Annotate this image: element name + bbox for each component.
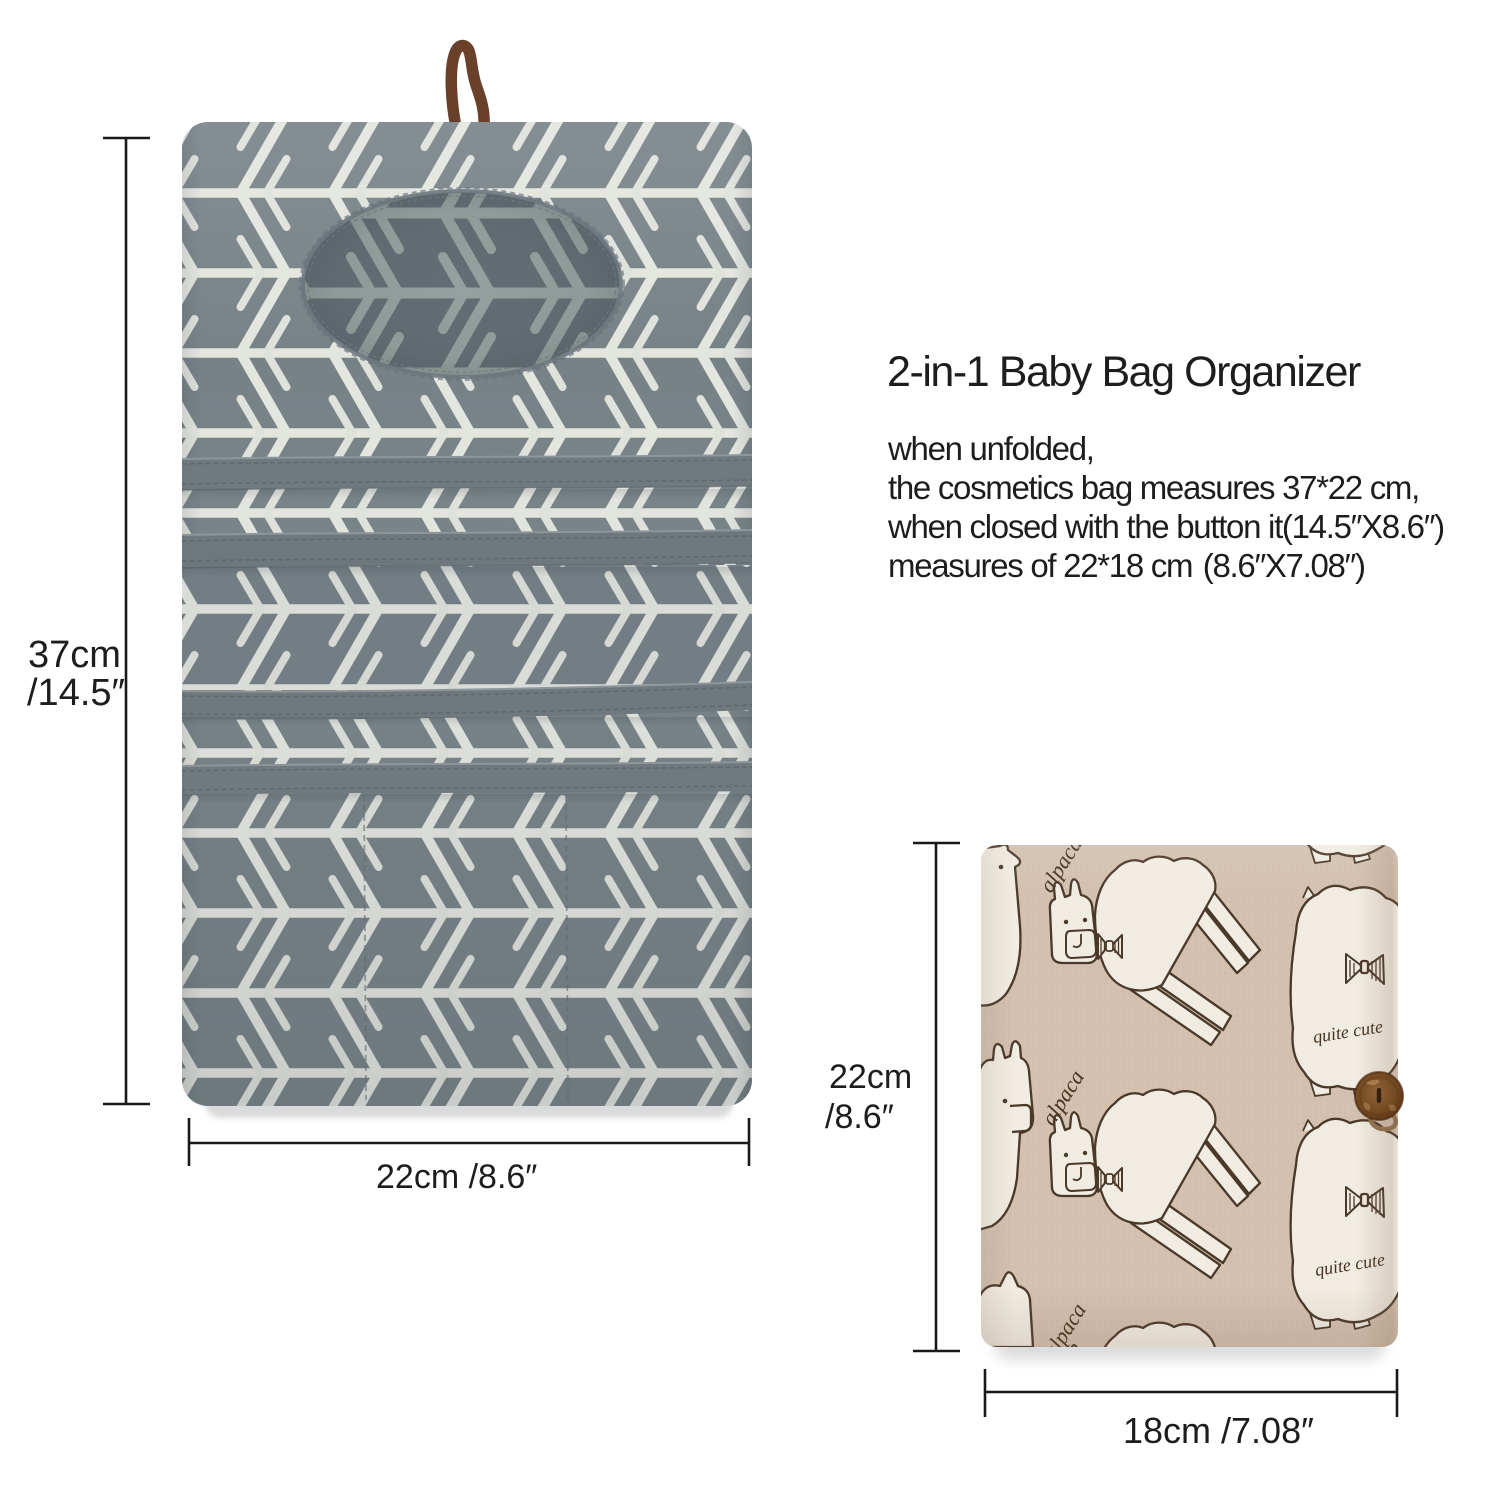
- svg-text:22cm /8.6″: 22cm /8.6″: [376, 1158, 537, 1196]
- svg-text:/14.5″: /14.5″: [27, 672, 125, 714]
- svg-text:22cm: 22cm: [829, 1058, 912, 1096]
- svg-text:measures of 22*18 cm (8.6″X7.: measures of 22*18 cm (8.6″X7.08″): [888, 547, 1365, 584]
- svg-text:when unfolded,: when unfolded,: [887, 430, 1094, 467]
- svg-text:18cm /7.08″: 18cm /7.08″: [1123, 1410, 1314, 1451]
- svg-text:the cosmetics bag measures 37*: the cosmetics bag measures 37*22 cm,: [888, 469, 1419, 506]
- svg-text:2-in-1 Baby Bag Organizer: 2-in-1 Baby Bag Organizer: [887, 348, 1361, 396]
- svg-text:37cm: 37cm: [28, 634, 121, 676]
- svg-text:/8.6″: /8.6″: [825, 1098, 894, 1136]
- svg-text:when closed with the button it: when closed with the button it(14.5″X8.6…: [887, 508, 1444, 545]
